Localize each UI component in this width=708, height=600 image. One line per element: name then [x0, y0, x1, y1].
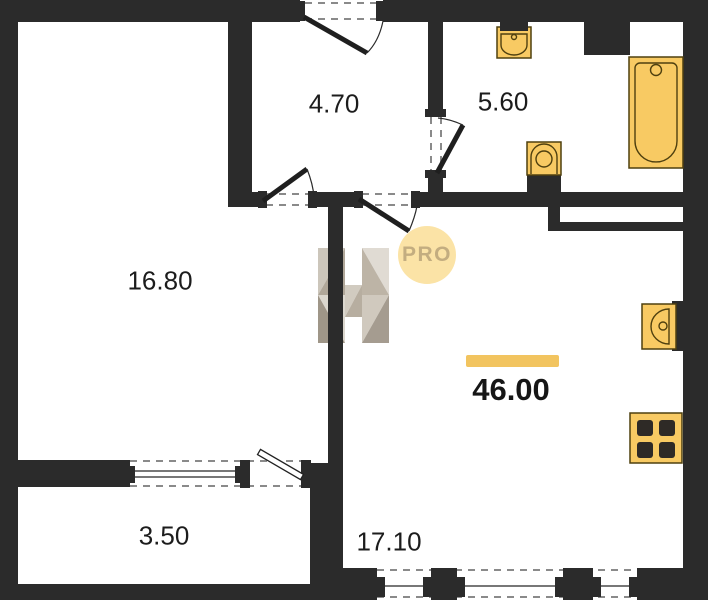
- door-hallway-to-bedroom: [263, 169, 314, 201]
- wall-bottom-right-corner: [637, 568, 708, 600]
- kitchen-sink-icon: [642, 301, 684, 351]
- pro-badge: PRO: [398, 226, 456, 284]
- room-label-bedroom: 16.80: [127, 266, 192, 297]
- wall-right: [683, 0, 708, 600]
- wall-top-left: [0, 0, 300, 22]
- room-label-bathroom: 5.60: [478, 87, 529, 118]
- wall-hallway-divider: [228, 22, 252, 207]
- room-label-hallway: 4.70: [309, 89, 360, 120]
- wall-balcony-bottom: [0, 584, 337, 600]
- wall-top-right: [383, 0, 708, 22]
- wall-bathroom-left-upper: [428, 22, 443, 115]
- total-area-label: 46.00: [472, 372, 550, 408]
- wall-left: [0, 0, 18, 600]
- toilet-icon: [527, 142, 561, 192]
- pro-badge-label: PRO: [402, 243, 452, 267]
- wall-balcony-top: [18, 460, 130, 487]
- entrance-door: [304, 17, 383, 53]
- balcony-door: [258, 449, 304, 479]
- floor-plan: 4.70 5.60 16.80 17.10 3.50 46.00 PRO: [0, 0, 708, 600]
- bathtub-icon: [629, 57, 683, 168]
- duct-wall-horizontal: [548, 222, 683, 231]
- wash-basin-icon: [497, 22, 531, 58]
- stove-icon: [630, 413, 682, 463]
- room-label-kitchen-living: 17.10: [356, 527, 421, 558]
- total-area-accent-bar: [466, 355, 559, 367]
- room-label-balcony: 3.50: [139, 521, 190, 552]
- door-hallway-to-living: [359, 199, 417, 231]
- wall-stub-bath-niche: [584, 22, 630, 55]
- wall-livingroom-left: [328, 192, 343, 463]
